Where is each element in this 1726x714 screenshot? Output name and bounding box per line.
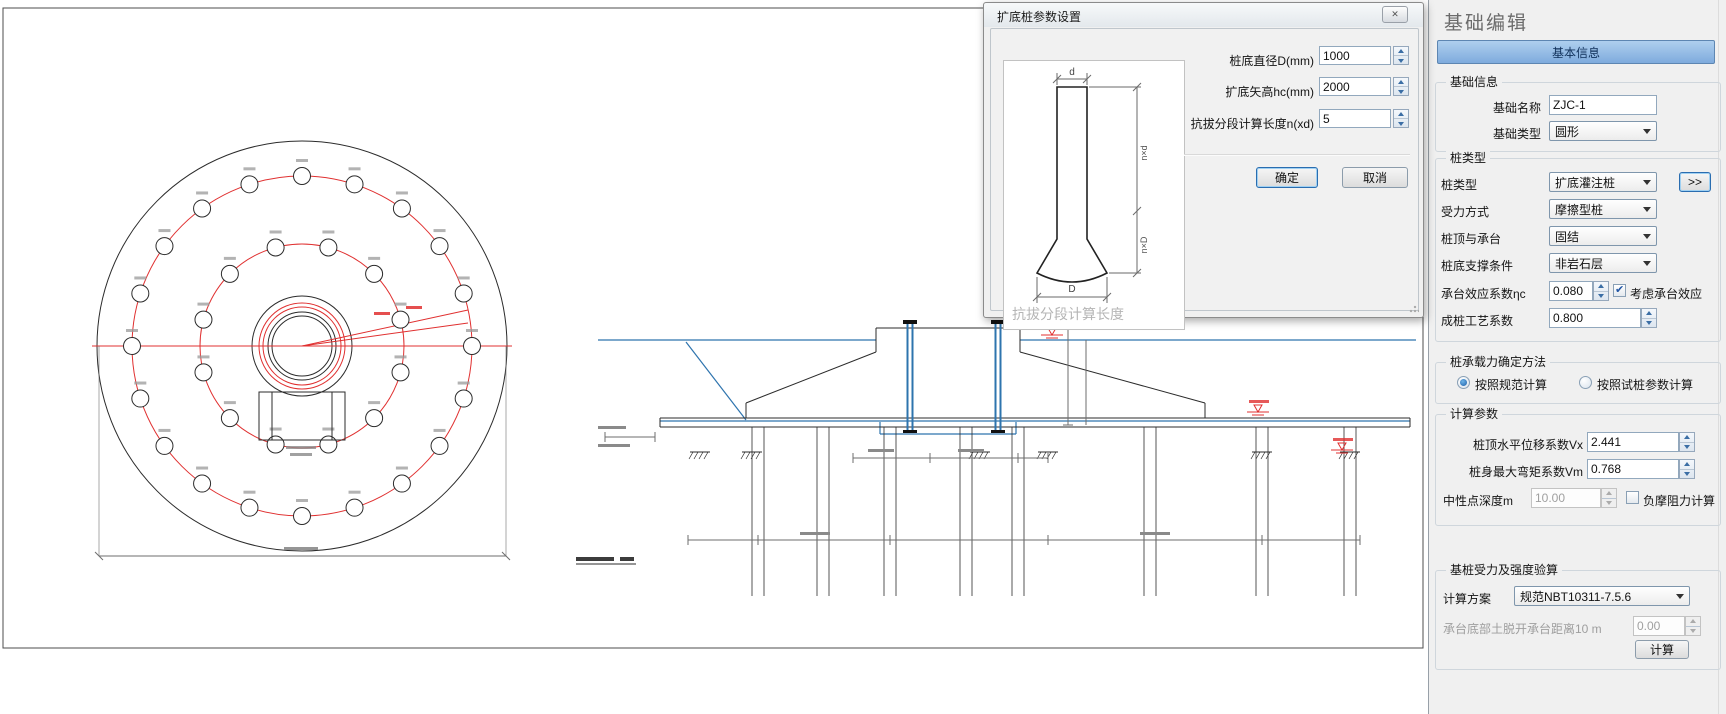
pile-type-more-button[interactable]: >> xyxy=(1679,172,1711,192)
group-strength-check-title: 基桩受力及强度验算 xyxy=(1446,563,1562,577)
cap-detach-distance-input xyxy=(1633,616,1685,636)
spin-down-icon[interactable] xyxy=(1394,86,1408,95)
sketch-caption: 抗拔分段计算长度 xyxy=(1012,304,1124,324)
spin-up-icon[interactable] xyxy=(1394,47,1408,55)
foundation-edit-panel: 基础编辑 基本信息 基础信息 基础名称 基础类型 圆形 桩类型 桩类型 扩底灌注… xyxy=(1428,0,1726,714)
pile-craft-coef-label: 成桩工艺系数 xyxy=(1441,312,1513,329)
group-foundation-info-title: 基础信息 xyxy=(1446,75,1502,89)
pile-params-dialog: 扩底桩参数设置 ✕ xyxy=(983,2,1424,318)
spin-up-icon[interactable] xyxy=(1394,78,1408,86)
foundation-type-value: 圆形 xyxy=(1555,123,1579,140)
calc-scheme-label: 计算方案 xyxy=(1443,590,1491,607)
cap-effect-coef-label: 承台效应系数ηc xyxy=(1441,285,1526,302)
radio-by-test-pile-label: 按照试桩参数计算 xyxy=(1597,376,1693,393)
spin-up-icon xyxy=(1602,489,1616,498)
vm-coef-input[interactable] xyxy=(1587,459,1679,479)
calc-scheme-value: 规范NBT10311-7.5.6 xyxy=(1520,588,1631,605)
spin-down-icon[interactable] xyxy=(1680,442,1694,452)
spin-up-icon[interactable] xyxy=(1680,433,1694,442)
spin-down-icon xyxy=(1602,498,1616,508)
spin-down-icon xyxy=(1686,626,1700,636)
pile-top-cap-label: 桩顶与承台 xyxy=(1441,230,1501,247)
spin-down-icon[interactable] xyxy=(1394,55,1408,64)
dialog-separator xyxy=(1184,154,1410,156)
pile-bottom-diameter-label: 桩底直径D(mm) xyxy=(1134,52,1314,69)
pile-bottom-support-select[interactable]: 非岩石层 xyxy=(1549,253,1657,273)
sketch-dim-nxD: n×D xyxy=(1139,236,1149,253)
calculate-button[interactable]: 计算 xyxy=(1635,640,1689,659)
force-mode-value: 摩擦型桩 xyxy=(1555,201,1603,218)
negative-friction-label: 负摩阻力计算 xyxy=(1643,492,1715,509)
pile-sketch-panel: d D n×d n×D 抗拔分段计算长度 xyxy=(1003,60,1185,330)
sketch-dim-d: d xyxy=(1069,67,1075,78)
flare-height-label: 扩底矢高hc(mm) xyxy=(1134,83,1314,100)
uplift-segment-length-label: 抗拔分段计算长度n(xd) xyxy=(1134,115,1314,132)
close-icon[interactable]: ✕ xyxy=(1382,6,1408,23)
pile-type-select[interactable]: 扩底灌注桩 xyxy=(1549,172,1657,192)
vx-coef-label: 桩顶水平位移系数Vx xyxy=(1459,436,1583,453)
uplift-segment-length-spinner[interactable] xyxy=(1393,109,1409,128)
tab-basic-info[interactable]: 基本信息 xyxy=(1437,40,1715,64)
pile-craft-coef-spinner[interactable] xyxy=(1641,308,1657,328)
pile-top-cap-value: 固结 xyxy=(1555,228,1579,245)
group-bearing-method-title: 桩承载力确定方法 xyxy=(1446,355,1550,369)
cap-effect-coef-input[interactable] xyxy=(1549,281,1593,301)
pile-type-label: 桩类型 xyxy=(1441,176,1477,193)
force-mode-select[interactable]: 摩擦型桩 xyxy=(1549,199,1657,219)
sketch-dim-D: D xyxy=(1068,284,1075,295)
flare-height-input[interactable] xyxy=(1319,77,1391,96)
pile-bottom-diameter-spinner[interactable] xyxy=(1393,46,1409,65)
cap-detach-distance-label: 承台底部土脱开承台距离10 m xyxy=(1443,620,1602,637)
spin-up-icon[interactable] xyxy=(1394,110,1408,118)
pile-type-value: 扩底灌注桩 xyxy=(1555,174,1615,191)
spin-up-icon xyxy=(1686,617,1700,626)
negative-friction-checkbox[interactable] xyxy=(1626,491,1639,504)
pile-bottom-support-value: 非岩石层 xyxy=(1555,255,1603,272)
sketch-dim-nxd: n×d xyxy=(1139,145,1149,160)
pile-top-cap-select[interactable]: 固结 xyxy=(1549,226,1657,246)
group-pile-type-title: 桩类型 xyxy=(1446,151,1490,165)
uplift-segment-length-input[interactable] xyxy=(1319,109,1391,128)
pile-bottom-diameter-input[interactable] xyxy=(1319,46,1391,65)
spin-down-icon[interactable] xyxy=(1394,118,1408,127)
spin-down-icon[interactable] xyxy=(1642,318,1656,328)
radio-by-code-label: 按照规范计算 xyxy=(1475,376,1547,393)
ok-button[interactable]: 确定 xyxy=(1256,167,1318,188)
radio-by-test-pile[interactable] xyxy=(1579,376,1592,389)
vm-coef-label: 桩身最大弯矩系数Vm xyxy=(1459,463,1583,480)
spin-up-icon[interactable] xyxy=(1680,460,1694,469)
pile-sketch: d D n×d n×D xyxy=(1004,61,1184,329)
pile-craft-coef-input[interactable] xyxy=(1549,308,1641,328)
cap-effect-coef-spinner[interactable] xyxy=(1593,281,1609,301)
vx-coef-input[interactable] xyxy=(1587,432,1679,452)
consider-cap-effect-checkbox[interactable] xyxy=(1613,284,1626,297)
spin-up-icon[interactable] xyxy=(1594,282,1608,291)
foundation-type-select[interactable]: 圆形 xyxy=(1549,121,1657,141)
neutral-depth-input xyxy=(1531,488,1601,508)
spin-up-icon[interactable] xyxy=(1642,309,1656,318)
dialog-titlebar[interactable]: 扩底桩参数设置 ✕ xyxy=(984,3,1423,27)
vm-coef-spinner[interactable] xyxy=(1679,459,1695,479)
foundation-name-label: 基础名称 xyxy=(1461,99,1541,116)
calc-scheme-select[interactable]: 规范NBT10311-7.5.6 xyxy=(1514,586,1690,606)
flare-height-spinner[interactable] xyxy=(1393,77,1409,96)
pile-bottom-support-label: 桩底支撑条件 xyxy=(1441,257,1513,274)
cap-detach-distance-spinner xyxy=(1685,616,1701,636)
resize-grip[interactable] xyxy=(1409,303,1419,313)
cancel-button[interactable]: 取消 xyxy=(1342,167,1408,188)
spin-down-icon[interactable] xyxy=(1594,291,1608,301)
dialog-title: 扩底桩参数设置 xyxy=(997,8,1081,25)
vx-coef-spinner[interactable] xyxy=(1679,432,1695,452)
neutral-depth-spinner xyxy=(1601,488,1617,508)
app-window: 扩底桩参数设置 ✕ xyxy=(0,0,1726,714)
consider-cap-effect-label: 考虑承台效应 xyxy=(1630,285,1702,302)
foundation-type-label: 基础类型 xyxy=(1461,125,1541,142)
spin-down-icon[interactable] xyxy=(1680,469,1694,479)
radio-by-code[interactable] xyxy=(1457,376,1470,389)
foundation-name-input[interactable] xyxy=(1549,95,1657,115)
panel-title: 基础编辑 xyxy=(1444,8,1528,35)
force-mode-label: 受力方式 xyxy=(1441,203,1489,220)
neutral-depth-label: 中性点深度m xyxy=(1443,492,1513,509)
group-calc-params-title: 计算参数 xyxy=(1446,407,1502,421)
